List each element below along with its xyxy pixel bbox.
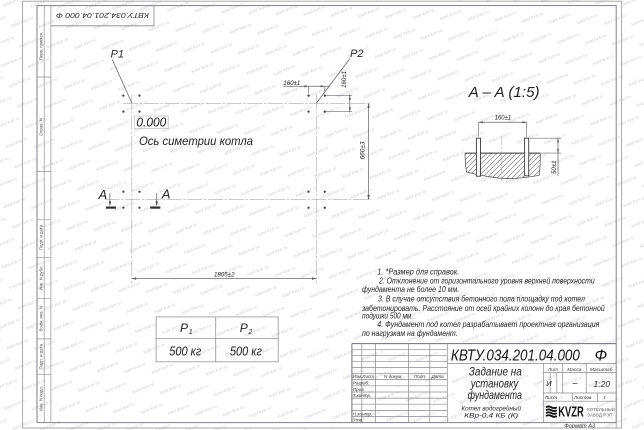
svg-text:–: – [572,378,579,388]
svg-text:0.000: 0.000 [136,115,166,129]
svg-text:Разраб.: Разраб. [353,381,370,386]
svg-text:Инв. N подл.: Инв. N подл. [38,386,43,411]
svg-text:160±1: 160±1 [495,114,512,121]
svg-text:A: A [98,187,108,202]
svg-text:КВТУ.034.201.04.000 Ф: КВТУ.034.201.04.000 Ф [56,11,149,20]
svg-text:2: 2 [248,329,253,336]
svg-text:Формат А3: Формат А3 [564,424,596,430]
svg-text:ЗАВОД РЭП: ЗАВОД РЭП [587,412,612,417]
svg-text:660±3: 660±3 [360,141,367,159]
svg-text:P1: P1 [111,48,124,60]
svg-text:P: P [180,321,188,335]
svg-text:1:20: 1:20 [594,379,611,389]
svg-text:Инв. N дубл.: Инв. N дубл. [38,265,43,290]
svg-text:50±1: 50±1 [551,160,558,174]
svg-text:1: 1 [603,395,606,401]
svg-text:P: P [240,321,248,335]
svg-text:Н.контр.: Н.контр. [353,412,372,417]
svg-text:фундамента: фундамента [468,388,523,402]
svg-text:Подп. и дата: Подп. и дата [38,344,43,370]
svg-text:Листов: Листов [573,395,592,401]
svg-text:160±1: 160±1 [341,71,348,88]
svg-text:И: И [546,379,552,388]
svg-text:Подп.: Подп. [414,374,426,379]
svg-text:1: 1 [189,329,193,336]
svg-text:Пров.: Пров. [353,387,365,392]
svg-text:Масштаб: Масштаб [590,367,613,373]
svg-text:Т.контр.: Т.контр. [353,393,372,398]
svg-text:P2: P2 [350,48,363,60]
svg-text:Подп. и дата: Подп. и дата [38,224,43,250]
svg-text:КВр-0,4 КБ (К): КВр-0,4 КБ (К) [464,412,518,419]
svg-text:A: A [161,186,171,201]
svg-text:N докум.: N докум. [384,374,403,379]
svg-text:Изм.Лист: Изм.Лист [353,374,375,379]
svg-text:Утв.: Утв. [353,418,363,423]
svg-text:1805±2: 1805±2 [214,272,235,279]
svg-text:Лит: Лит [547,367,558,373]
svg-text:Ось симетрии котла: Ось симетрии котла [139,136,253,148]
svg-text:500 кг: 500 кг [230,344,262,358]
svg-text:КВТУ.034.201.04.000: КВТУ.034.201.04.000 [451,348,580,365]
svg-text:по нагрузкам на фундамент.: по нагрузкам на фундамент. [362,328,458,338]
svg-text:KVZR: KVZR [558,405,584,421]
svg-text:Справ. N: Справ. N [38,118,43,136]
svg-text:Перв. примен.: Перв. примен. [38,32,43,61]
svg-text:Дата: Дата [431,374,445,379]
svg-text:КОТЕЛЬНЫЙ: КОТЕЛЬНЫЙ [587,407,615,412]
svg-text:Масса: Масса [567,367,582,373]
svg-text:500 кг: 500 кг [169,344,201,358]
svg-text:Ф: Ф [595,348,608,365]
svg-text:Лист: Лист [544,395,557,401]
svg-text:Взам. инв. N: Взам. инв. N [38,306,43,331]
svg-text:A – A (1:5): A – A (1:5) [468,84,540,101]
